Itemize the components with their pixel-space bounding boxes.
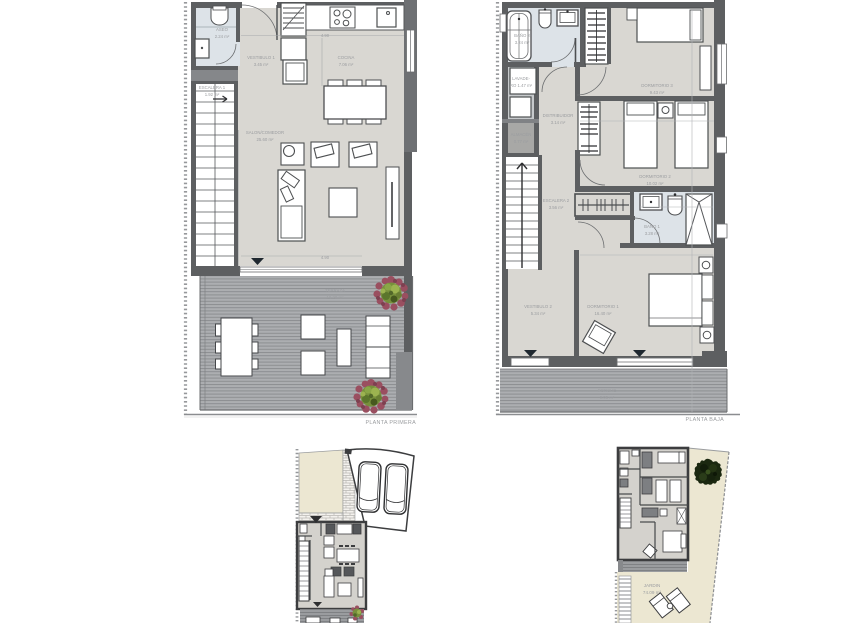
svg-text:SALON/COMEDOR: SALON/COMEDOR xyxy=(246,130,284,135)
svg-text:9.95 m²: 9.95 m² xyxy=(600,395,615,400)
svg-text:BAÑO 1: BAÑO 1 xyxy=(644,224,660,229)
svg-text:0.77 m²: 0.77 m² xyxy=(514,139,529,144)
svg-text:ASEO: ASEO xyxy=(216,27,229,32)
svg-text:RO 1.47 m²: RO 1.47 m² xyxy=(510,83,533,88)
svg-text:16.40 m²: 16.40 m² xyxy=(595,311,613,316)
svg-text:4.90: 4.90 xyxy=(321,33,330,38)
svg-text:ESCALERA 2: ESCALERA 2 xyxy=(543,198,570,203)
svg-text:DORMITORIO 1: DORMITORIO 1 xyxy=(587,304,619,309)
svg-text:PLANTA PRIMERA: PLANTA PRIMERA xyxy=(365,420,416,426)
svg-text:3.14 m²: 3.14 m² xyxy=(551,120,566,125)
svg-text:ESCALERA 1: ESCALERA 1 xyxy=(199,85,226,90)
svg-text:5.34 m²: 5.34 m² xyxy=(531,311,546,316)
svg-text:ALMACÉN: ALMACÉN xyxy=(511,132,532,137)
svg-text:19.20 m²: 19.20 m² xyxy=(327,295,345,300)
svg-text:7.06 m²: 7.06 m² xyxy=(339,62,354,67)
svg-text:25.60 m²: 25.60 m² xyxy=(257,137,275,142)
svg-text:TERRAZA: TERRAZA xyxy=(325,288,345,293)
svg-text:3.56 m²: 3.56 m² xyxy=(549,205,564,210)
svg-text:DORMITORIO 2: DORMITORIO 2 xyxy=(639,174,671,179)
svg-text:2.24 m²: 2.24 m² xyxy=(215,34,230,39)
svg-text:COCINA: COCINA xyxy=(338,55,355,60)
svg-text:VESTIBULO 2: VESTIBULO 2 xyxy=(524,304,552,309)
svg-text:3.24 m²: 3.24 m² xyxy=(515,40,530,45)
svg-text:DORMITORIO 3: DORMITORIO 3 xyxy=(641,83,673,88)
svg-text:PLANTA BAJA: PLANTA BAJA xyxy=(685,417,724,423)
svg-text:BAÑO 2: BAÑO 2 xyxy=(514,33,530,38)
svg-text:VESTIBULO 1: VESTIBULO 1 xyxy=(247,55,275,60)
svg-text:9.43 m²: 9.43 m² xyxy=(650,90,665,95)
svg-text:10.02 m²: 10.02 m² xyxy=(647,181,665,186)
svg-text:1.92 m²: 1.92 m² xyxy=(205,92,220,97)
svg-text:4.90: 4.90 xyxy=(321,255,330,260)
svg-text:LAVADE-: LAVADE- xyxy=(512,76,530,81)
svg-text:PORCHE: PORCHE xyxy=(598,388,617,393)
svg-text:3.45 m²: 3.45 m² xyxy=(254,62,269,67)
svg-text:3.28 m²: 3.28 m² xyxy=(645,231,660,236)
svg-text:DISTRIBUIDOR: DISTRIBUIDOR xyxy=(543,113,574,118)
svg-text:JARDIN: JARDIN xyxy=(644,583,661,588)
